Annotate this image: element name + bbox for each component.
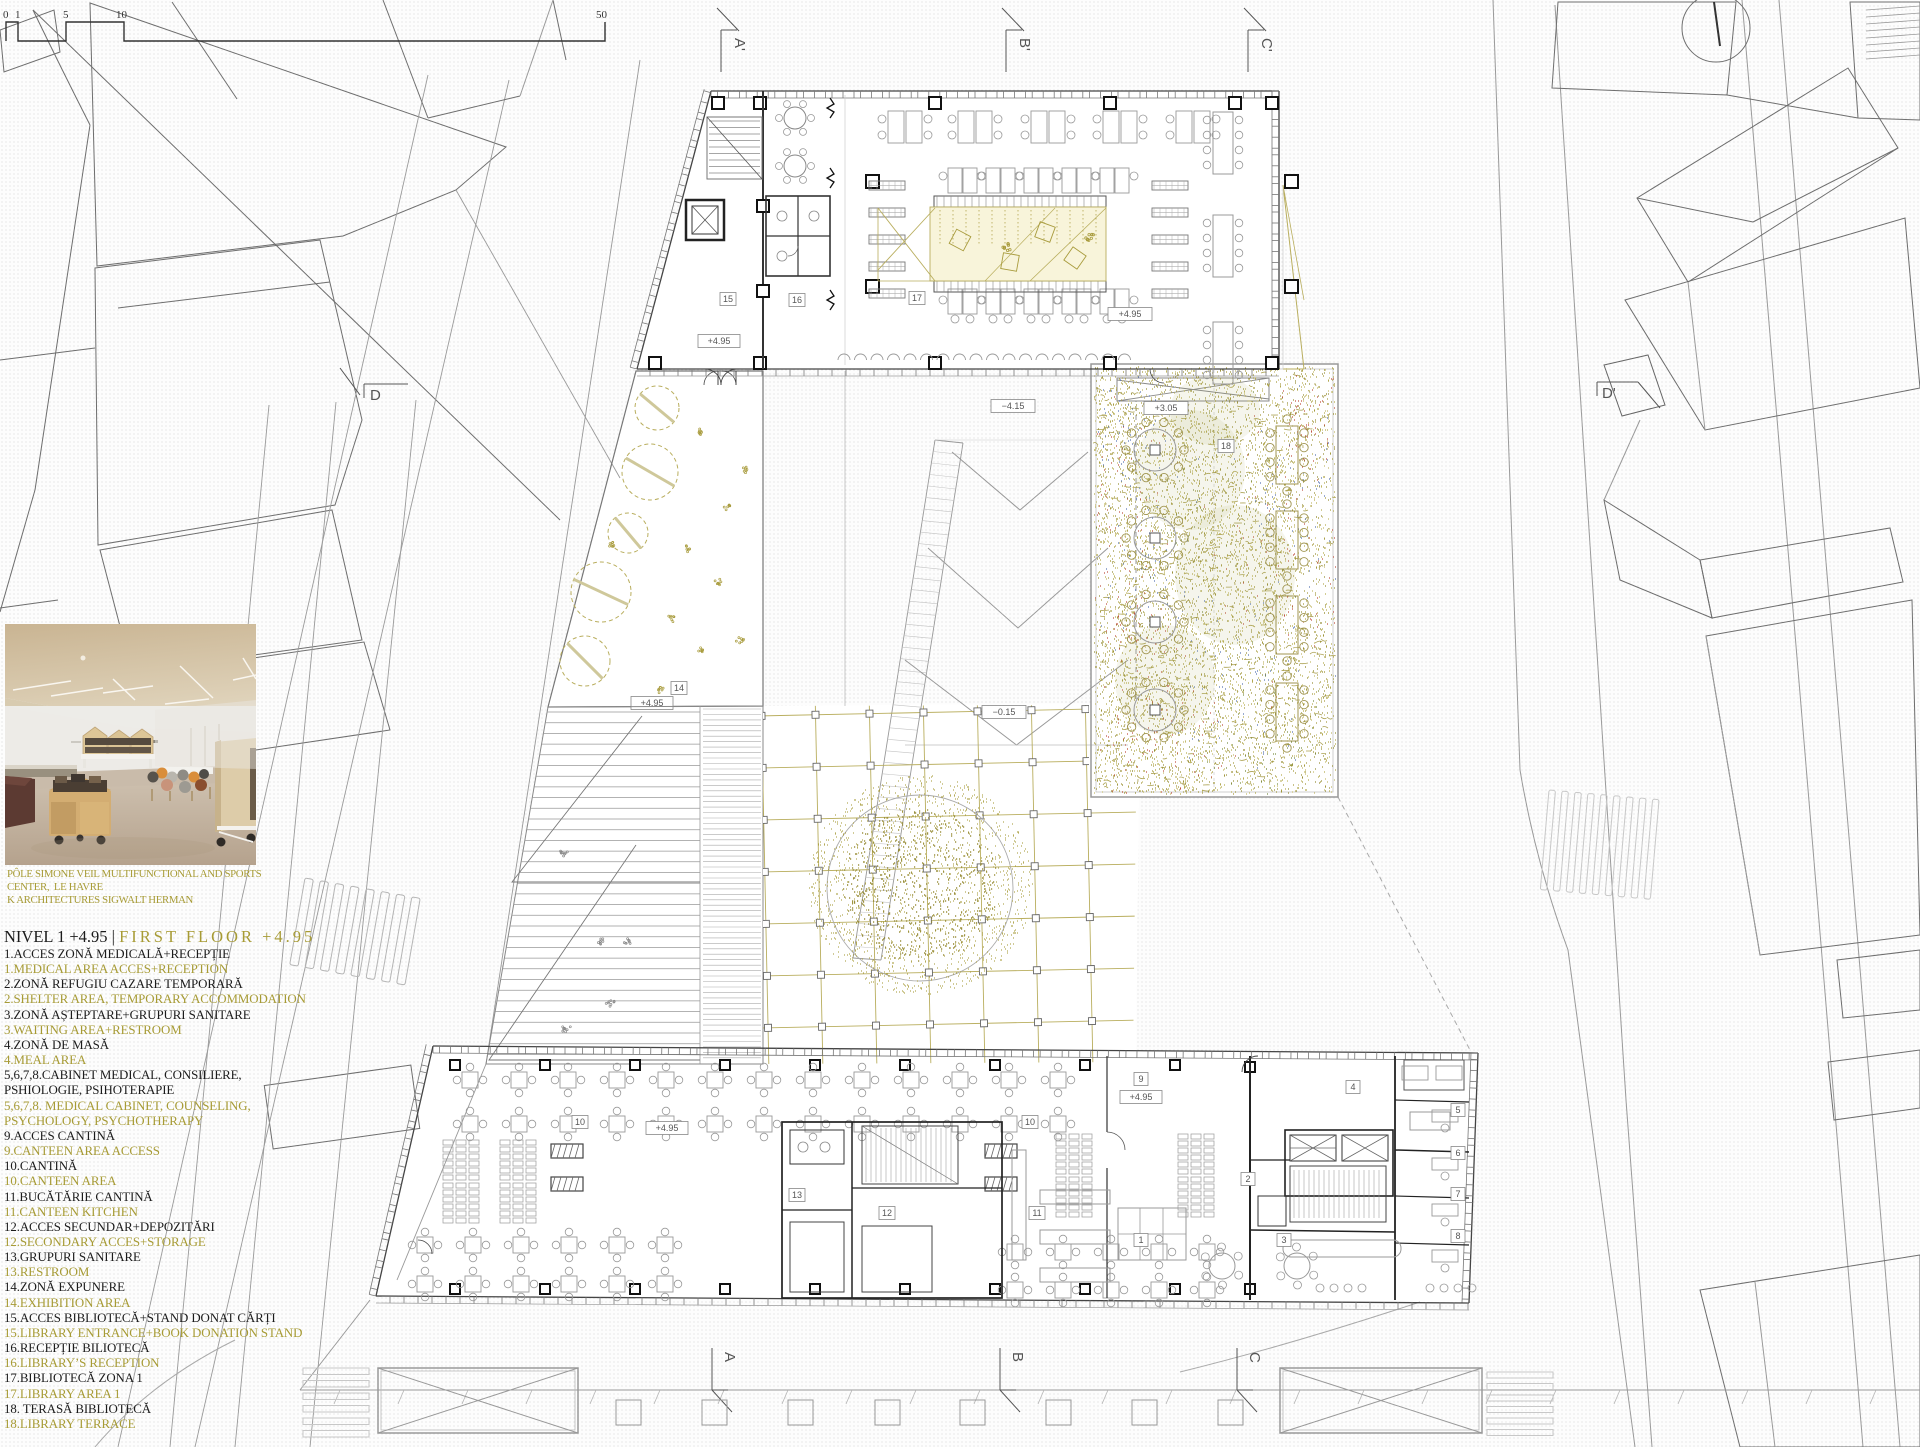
svg-text:D': D' (1602, 385, 1616, 402)
svg-text:+3.05: +3.05 (1155, 403, 1178, 413)
svg-text:4: 4 (1350, 1082, 1355, 1092)
svg-text:7: 7 (1455, 1189, 1460, 1199)
svg-text:3: 3 (1281, 1235, 1286, 1245)
svg-text:12: 12 (882, 1208, 892, 1218)
svg-text:10: 10 (1025, 1117, 1035, 1127)
svg-text:1: 1 (1138, 1235, 1143, 1245)
svg-text:+4.95: +4.95 (708, 336, 731, 346)
svg-text:A: A (721, 1352, 738, 1362)
svg-text:16: 16 (792, 295, 802, 305)
svg-text:15: 15 (723, 294, 733, 304)
svg-text:+4.95: +4.95 (656, 1123, 679, 1133)
svg-text:A': A' (731, 38, 748, 51)
svg-text:18: 18 (1221, 441, 1231, 451)
svg-text:B: B (1009, 1352, 1026, 1362)
svg-text:C: C (1246, 1352, 1263, 1363)
svg-text:6: 6 (1455, 1148, 1460, 1158)
svg-text:13: 13 (792, 1190, 802, 1200)
svg-text:17: 17 (912, 293, 922, 303)
svg-text:10: 10 (116, 9, 128, 21)
svg-text:9: 9 (1138, 1074, 1143, 1084)
svg-text:10: 10 (575, 1117, 585, 1127)
svg-text:−4.15: −4.15 (1002, 401, 1025, 411)
svg-text:8: 8 (1455, 1231, 1460, 1241)
svg-text:5: 5 (63, 9, 69, 21)
svg-text:11: 11 (1032, 1208, 1041, 1218)
svg-text:+4.95: +4.95 (1130, 1092, 1153, 1102)
svg-text:+4.95: +4.95 (1119, 309, 1142, 319)
svg-text:D: D (370, 387, 381, 404)
svg-text:−0.15: −0.15 (993, 707, 1016, 717)
svg-text:1: 1 (15, 9, 21, 21)
svg-text:2: 2 (1245, 1174, 1250, 1184)
svg-text:5: 5 (1455, 1105, 1460, 1115)
svg-text:C': C' (1258, 38, 1275, 52)
svg-text:50: 50 (596, 9, 608, 21)
svg-text:14: 14 (674, 683, 684, 693)
svg-text:0: 0 (3, 9, 9, 21)
svg-text:B': B' (1016, 38, 1033, 51)
